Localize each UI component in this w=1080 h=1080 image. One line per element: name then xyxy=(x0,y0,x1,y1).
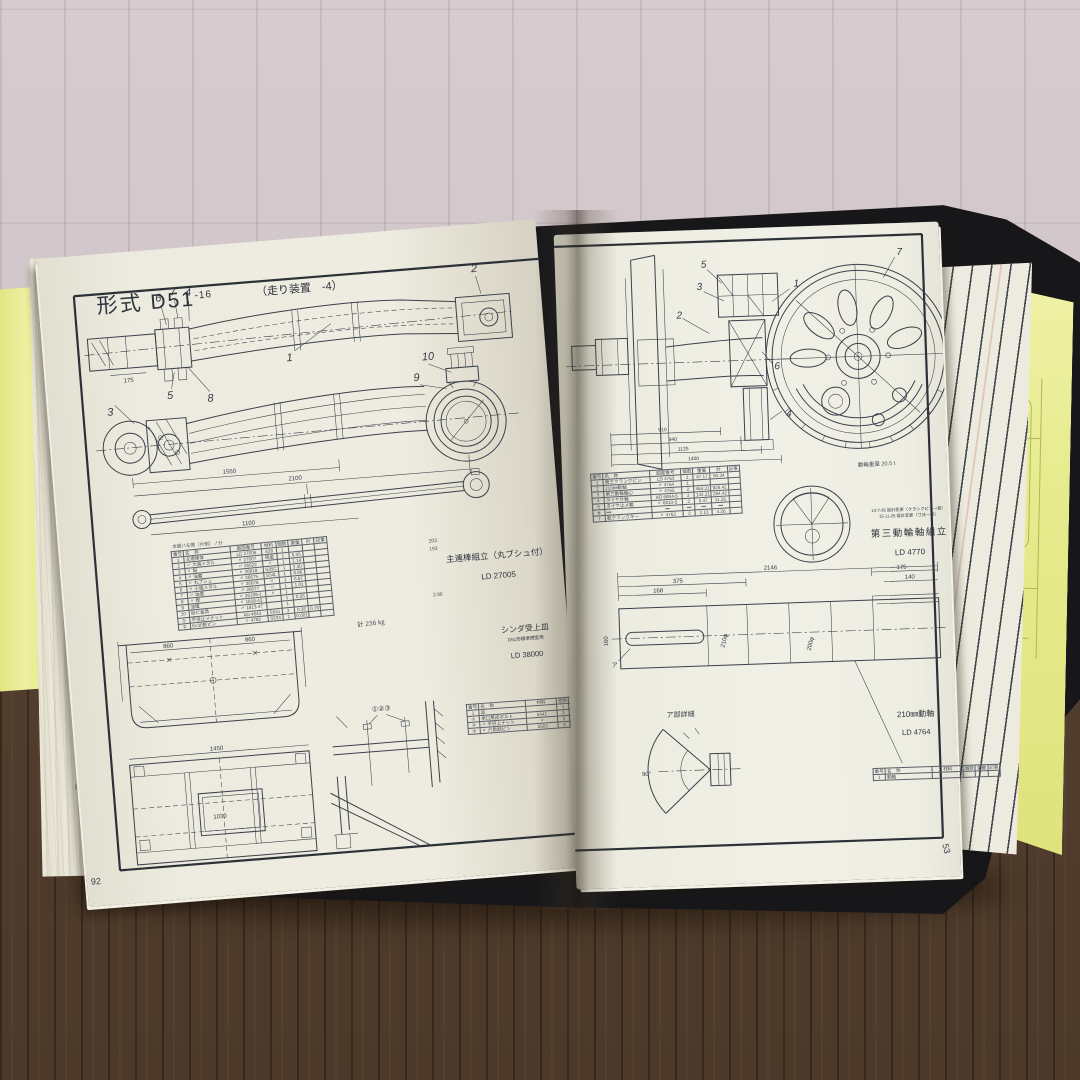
pan-dim: 860 xyxy=(163,643,174,650)
wheel-dim: 1400 xyxy=(688,456,700,462)
assembly-caption: 13-7-26 設計変更（クランクピン一部） 15-11-25 設計変更（寸法一… xyxy=(853,505,965,559)
pan-dim: 860 xyxy=(245,637,256,644)
table-side-note: 203 xyxy=(428,538,437,545)
axle-caption: 210㎜動軸 LD 4764 xyxy=(876,707,955,738)
wheel-callout: 3 xyxy=(696,282,702,293)
wheel-dim: 940 xyxy=(669,437,678,443)
axle-caption-title: 210㎜動軸 xyxy=(876,707,954,721)
rod-callout: 2 xyxy=(469,263,477,276)
rod-dim: 1550 xyxy=(223,469,237,476)
axle-dim: 160 xyxy=(604,636,610,647)
wheel-dim: 910 xyxy=(658,427,667,433)
cinder-caption: シンダ受上皿 D51形標準煙室用 LD 38000 xyxy=(482,620,571,663)
page-title-suffix: -16 xyxy=(194,289,212,301)
detail-angle: 90° xyxy=(642,772,652,778)
rod-callout: 5 xyxy=(167,390,175,403)
table-side-note: 2.96 xyxy=(433,592,443,599)
detail-label: ア部詳細 xyxy=(666,709,694,719)
table-side-note: 193 xyxy=(429,546,438,553)
axle-dim: 175 xyxy=(896,565,907,571)
parts-table-right: 番号名 称図面番号個数重量計記事1第三クランクピンLD 4763247.1794… xyxy=(590,465,742,523)
axle-dim: 140 xyxy=(905,575,916,581)
pan-dim: 1450 xyxy=(210,746,224,753)
pan-dim: 1030 xyxy=(213,814,227,821)
rod-callout: 8 xyxy=(207,392,215,405)
left-page: 6 7 4 5 8 3 1 2 10 9 175 xyxy=(37,219,588,907)
right-page: 5 3 2 1 7 6 4 910 940 1125 1400 xyxy=(554,221,962,889)
axle-dim: 2146 xyxy=(764,565,778,571)
parts-table-left: 番号名 称図面番号材料個数重量計記事1主連棒体LD 27006S2812〃 大端… xyxy=(171,536,335,631)
rod-callout: 1 xyxy=(286,352,293,364)
pan-detail-callouts: ①②③ xyxy=(372,704,391,713)
assembly-caption-title: 第三動輪軸組立 xyxy=(854,523,964,541)
rod-dim: 175 xyxy=(124,378,135,385)
wheel-callout: 2 xyxy=(675,310,682,321)
rod-callout: 9 xyxy=(413,372,420,384)
rod-callout: 10 xyxy=(421,350,435,363)
rod-dim: 1100 xyxy=(242,520,256,527)
axle-ref: ア xyxy=(612,662,618,669)
axle-dim: 200φ xyxy=(807,636,816,651)
photo-of-open-drawing-book: 3 2 6 図51/30 xyxy=(0,0,1080,1080)
wheel-callout: 7 xyxy=(896,247,902,258)
wheel-dim: 1125 xyxy=(678,446,689,452)
axle-dim: 210φ xyxy=(721,633,730,648)
wheel-callout: 6 xyxy=(774,361,780,372)
wheel-callout: 5 xyxy=(701,260,707,271)
axle-dim: 168 xyxy=(653,588,664,594)
rod-dim: 2100 xyxy=(288,475,302,482)
axle-dim: 375 xyxy=(673,579,684,585)
page-number-left: 92 xyxy=(90,876,101,887)
rod-callout: 3 xyxy=(107,406,115,419)
